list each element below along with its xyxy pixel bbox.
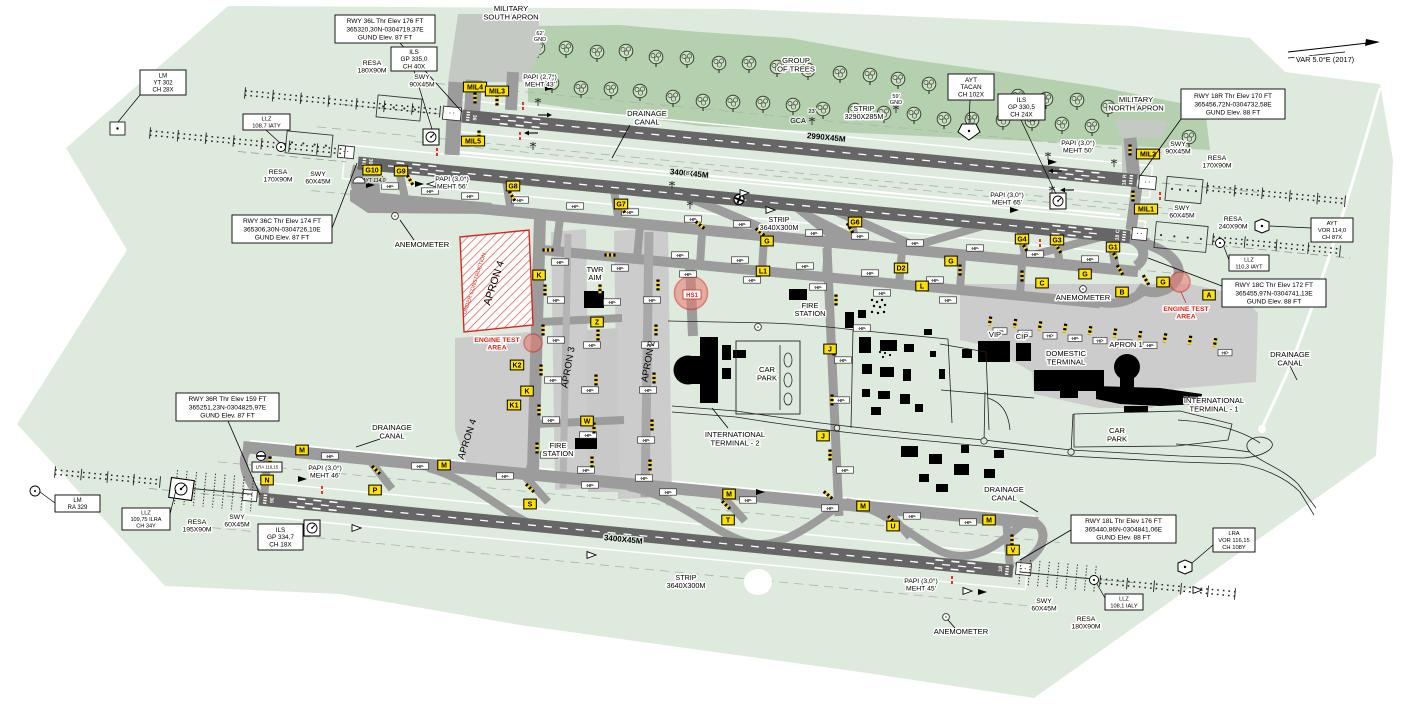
- svg-text:·HP·: ·HP·: [810, 231, 819, 236]
- svg-text:CH 28X: CH 28X: [152, 88, 173, 94]
- svg-text:VOR 116,15: VOR 116,15: [1218, 538, 1249, 544]
- svg-text:GND: GND: [890, 100, 902, 106]
- svg-text:MIL4: MIL4: [467, 85, 483, 92]
- svg-text:CH 102X: CH 102X: [958, 91, 985, 98]
- svg-text:·HP·: ·HP·: [911, 241, 920, 246]
- svg-text:N: N: [264, 478, 269, 485]
- svg-text:·HP·: ·HP·: [1146, 343, 1155, 348]
- svg-text:AIM: AIM: [588, 273, 601, 282]
- svg-text:3640X300M: 3640X300M: [760, 223, 799, 232]
- svg-text:·HP·: ·HP·: [736, 258, 745, 263]
- svg-text:90X45M: 90X45M: [409, 81, 435, 88]
- svg-text:MEHT 56': MEHT 56': [437, 184, 467, 191]
- svg-text:MEHT 50': MEHT 50': [1063, 148, 1093, 155]
- svg-text:108,1 IALY: 108,1 IALY: [1110, 603, 1138, 609]
- svg-text:K2: K2: [513, 363, 522, 370]
- svg-text:J: J: [821, 434, 825, 441]
- svg-text:·HP·: ·HP·: [676, 253, 685, 258]
- svg-text:RESA: RESA: [363, 60, 382, 67]
- svg-text:· ·: · ·: [449, 111, 455, 117]
- svg-text:18: 18: [998, 566, 1004, 572]
- svg-text:CIP: CIP: [1016, 332, 1029, 341]
- svg-text:GUND Elev. 87 FT: GUND Elev. 87 FT: [200, 413, 254, 420]
- svg-text:RESA: RESA: [269, 169, 288, 176]
- svg-text:LM: LM: [159, 74, 167, 80]
- svg-text:PAPI (3,0°): PAPI (3,0°): [1061, 139, 1095, 147]
- svg-text:·HP·: ·HP·: [501, 474, 510, 479]
- svg-text:110,3 IAYT: 110,3 IAYT: [1235, 264, 1263, 270]
- svg-text:G10: G10: [365, 168, 378, 175]
- svg-text:·HP·: ·HP·: [878, 291, 887, 296]
- svg-text:SWY: SWY: [229, 514, 245, 521]
- svg-text:18 C: 18 C: [1115, 229, 1122, 241]
- svg-text:VAR 5.0°E (2017): VAR 5.0°E (2017): [1296, 55, 1354, 64]
- svg-text:GND: GND: [534, 37, 546, 43]
- svg-text:RESA: RESA: [1208, 155, 1227, 162]
- svg-text:LRA 116,15: LRA 116,15: [256, 465, 279, 470]
- svg-text:·HP·: ·HP·: [326, 454, 335, 459]
- svg-text:·HP·: ·HP·: [644, 388, 653, 393]
- svg-text:·HP·: ·HP·: [516, 198, 525, 203]
- svg-text:G: G: [948, 259, 954, 266]
- svg-text:CH 40X: CH 40X: [403, 63, 426, 70]
- svg-text:M: M: [726, 492, 732, 499]
- svg-text:·HP·: ·HP·: [626, 210, 635, 215]
- svg-text:GP 330,5: GP 330,5: [1008, 104, 1035, 111]
- svg-text:3640X300M: 3640X300M: [667, 581, 706, 590]
- svg-text:·HP·: ·HP·: [908, 514, 917, 519]
- svg-text:·HP·: ·HP·: [640, 476, 649, 481]
- svg-text:L1: L1: [759, 269, 767, 276]
- svg-text:RESA: RESA: [1224, 216, 1243, 223]
- svg-text:G9: G9: [396, 169, 405, 176]
- svg-text:ILS: ILS: [409, 49, 419, 56]
- svg-text:SWY: SWY: [1170, 141, 1186, 148]
- svg-text:M: M: [441, 463, 447, 470]
- svg-text:RWY 18L Thr Elev 176 FT: RWY 18L Thr Elev 176 FT: [1085, 518, 1162, 525]
- svg-text:·HP·: ·HP·: [931, 278, 940, 283]
- svg-text:HS1: HS1: [686, 293, 698, 299]
- svg-text:LLZ: LLZ: [262, 117, 272, 123]
- svg-text:TERMINAL - 2: TERMINAL - 2: [710, 438, 759, 447]
- svg-text:ENGINE TEST: ENGINE TEST: [1163, 306, 1209, 313]
- svg-text:SWY: SWY: [1174, 205, 1190, 212]
- svg-text:·HP·: ·HP·: [426, 189, 435, 194]
- svg-text:·HP·: ·HP·: [571, 204, 580, 209]
- svg-text:U: U: [890, 524, 895, 531]
- svg-text:RWY 36L Thr Elev 176 FT: RWY 36L Thr Elev 176 FT: [347, 18, 424, 25]
- svg-text:G7: G7: [616, 202, 625, 209]
- svg-text:170X90M: 170X90M: [263, 176, 292, 183]
- svg-text:W: W: [584, 419, 591, 426]
- svg-text:·HP·: ·HP·: [1086, 257, 1095, 262]
- svg-text:G: G: [764, 239, 770, 246]
- svg-text:·HP·: ·HP·: [748, 278, 757, 283]
- svg-text:G3: G3: [1052, 238, 1061, 245]
- svg-text:MIL5: MIL5: [465, 139, 481, 146]
- svg-text:SWY: SWY: [414, 74, 430, 81]
- svg-text:·HP·: ·HP·: [552, 298, 561, 303]
- svg-text:· ·: · ·: [1137, 232, 1143, 238]
- svg-text:TERMINAL: TERMINAL: [1047, 357, 1085, 366]
- svg-text:·HP·: ·HP·: [1046, 334, 1055, 339]
- svg-text:K1: K1: [510, 403, 519, 410]
- svg-text:·HP·: ·HP·: [738, 222, 747, 227]
- svg-text:YT 302: YT 302: [153, 81, 173, 87]
- svg-text:·HP·: ·HP·: [971, 246, 980, 251]
- svg-text:·HP·: ·HP·: [856, 234, 865, 239]
- svg-text:MIL3: MIL3: [489, 89, 505, 96]
- svg-text:·HP·: ·HP·: [841, 468, 850, 473]
- svg-text:ENGINE TEST: ENGINE TEST: [474, 337, 520, 344]
- svg-text:RESA: RESA: [1077, 616, 1096, 623]
- svg-text:ANEMOMETER: ANEMOMETER: [934, 627, 989, 636]
- svg-text:CH 108Y: CH 108Y: [1222, 545, 1246, 551]
- svg-text:G6: G6: [850, 220, 859, 227]
- svg-text:J: J: [828, 347, 832, 354]
- svg-text:·HP·: ·HP·: [866, 271, 875, 276]
- svg-text:18 R: 18 R: [1122, 174, 1129, 186]
- svg-text:APRON 1: APRON 1: [1109, 340, 1142, 349]
- svg-text:RESA: RESA: [188, 519, 207, 526]
- svg-text:GUND Elev. 87 FT: GUND Elev. 87 FT: [358, 35, 412, 42]
- svg-text:·HP·: ·HP·: [826, 506, 835, 511]
- svg-text:RWY 18R Thr Elev 170 FT: RWY 18R Thr Elev 170 FT: [1194, 93, 1272, 100]
- svg-text:·HP·: ·HP·: [616, 266, 625, 271]
- svg-text:ANEMOMETER: ANEMOMETER: [1056, 293, 1111, 302]
- svg-text:60X45M: 60X45M: [224, 521, 250, 528]
- svg-text:·HP·: ·HP·: [689, 217, 698, 222]
- svg-text:TERMINAL - 1: TERMINAL - 1: [1189, 404, 1238, 413]
- svg-text:PAPI (3,0°): PAPI (3,0°): [435, 175, 469, 183]
- svg-text:8': 8': [686, 171, 690, 177]
- svg-text:·HP·: ·HP·: [642, 438, 651, 443]
- svg-text:CH 87X: CH 87X: [1322, 235, 1342, 241]
- svg-text:MEHT 65': MEHT 65': [992, 200, 1022, 207]
- svg-text:MEHT 43': MEHT 43': [525, 82, 555, 89]
- svg-text:·HP·: ·HP·: [648, 298, 657, 303]
- svg-text:OF TREES: OF TREES: [777, 64, 815, 73]
- svg-text:V: V: [1011, 548, 1016, 555]
- svg-text:·HP·: ·HP·: [588, 343, 597, 348]
- svg-text:RWY 36R Thr Elev 159 FT: RWY 36R Thr Elev 159 FT: [188, 396, 266, 403]
- svg-text:36: 36: [471, 114, 477, 120]
- svg-text:B: B: [1119, 290, 1124, 297]
- svg-text:·HP·: ·HP·: [1096, 338, 1105, 343]
- svg-text:M: M: [299, 448, 305, 455]
- svg-text:LLZ: LLZ: [1244, 258, 1254, 264]
- svg-text:·HP·: ·HP·: [664, 490, 673, 495]
- svg-text:·HP·: ·HP·: [547, 418, 556, 423]
- svg-text:ANEMOMETER: ANEMOMETER: [395, 240, 450, 249]
- svg-text:PAPI (3,0°): PAPI (3,0°): [308, 464, 342, 472]
- svg-text:CANAL: CANAL: [634, 117, 659, 126]
- svg-text:GUND Elev. 88 FT: GUND Elev. 88 FT: [1206, 110, 1260, 117]
- svg-text:240X90M: 240X90M: [1218, 223, 1247, 230]
- svg-text:GCA: GCA: [790, 116, 806, 125]
- svg-text:3290X285M: 3290X285M: [845, 112, 884, 121]
- svg-text:GUND Elev. 87 FT: GUND Elev. 87 FT: [255, 235, 309, 242]
- svg-text:L: L: [920, 284, 925, 291]
- svg-text:VIP: VIP: [989, 330, 1001, 339]
- svg-text:CH 34Y: CH 34Y: [136, 523, 156, 529]
- svg-text:·HP·: ·HP·: [839, 358, 848, 363]
- svg-text:GUND Elev. 88 FT: GUND Elev. 88 FT: [1096, 535, 1150, 542]
- svg-text:MEHT 45': MEHT 45': [906, 586, 936, 593]
- svg-text:365440,86N-0304841,06E: 365440,86N-0304841,06E: [1085, 526, 1163, 533]
- svg-text:180X90M: 180X90M: [1071, 623, 1100, 630]
- svg-text:CH 24X: CH 24X: [1010, 111, 1033, 118]
- svg-text:PAPI (3,0°): PAPI (3,0°): [904, 577, 938, 585]
- svg-text:·HP·: ·HP·: [466, 194, 475, 199]
- svg-text:D2: D2: [897, 266, 906, 273]
- svg-text:K: K: [536, 273, 541, 280]
- svg-text:P: P: [373, 488, 378, 495]
- svg-text:GUND Elev. 88 FT: GUND Elev. 88 FT: [1247, 299, 1301, 306]
- svg-text:SWY: SWY: [1036, 598, 1052, 605]
- svg-text:GP 335,0: GP 335,0: [401, 56, 428, 63]
- svg-text:RWY 18C Thr Elev 172 FT: RWY 18C Thr Elev 172 FT: [1235, 282, 1313, 289]
- svg-text:·HP·: ·HP·: [1031, 252, 1040, 257]
- svg-text:PAPI (2,7°): PAPI (2,7°): [523, 73, 557, 81]
- svg-text:RA 329: RA 329: [68, 505, 88, 511]
- svg-text:AREA: AREA: [1176, 313, 1195, 320]
- svg-text:M: M: [860, 504, 866, 511]
- svg-text:G4: G4: [1017, 237, 1026, 244]
- svg-text:S: S: [528, 502, 533, 509]
- svg-text:MIL1: MIL1: [1138, 207, 1154, 214]
- svg-text:· ·: · ·: [1145, 180, 1151, 186]
- svg-text:· ·: · ·: [1021, 567, 1027, 573]
- svg-text:·HP·: ·HP·: [586, 388, 595, 393]
- svg-text:AYT: AYT: [1327, 221, 1338, 227]
- svg-text:Z: Z: [595, 320, 600, 327]
- svg-text:36: 36: [268, 497, 274, 503]
- svg-text:·HP·: ·HP·: [858, 326, 867, 331]
- svg-text:23': 23': [808, 109, 815, 115]
- svg-text:CANAL: CANAL: [991, 493, 1016, 502]
- svg-text:·HP·: ·HP·: [944, 298, 953, 303]
- svg-text:365320,30N-0304719,37E: 365320,30N-0304719,37E: [346, 26, 424, 33]
- svg-text:G1: G1: [1108, 245, 1117, 252]
- svg-text:LM: LM: [73, 498, 81, 504]
- svg-text:PARK: PARK: [1107, 434, 1127, 443]
- svg-text:AYT: AYT: [965, 77, 977, 84]
- svg-text:60X45M: 60X45M: [1169, 212, 1195, 219]
- svg-text:·HP·: ·HP·: [1071, 336, 1080, 341]
- svg-text:G: G: [1082, 272, 1088, 279]
- svg-text:MEHT 46': MEHT 46': [310, 473, 340, 480]
- svg-text:·HP·: ·HP·: [549, 378, 558, 383]
- svg-text:·HP·: ·HP·: [416, 464, 425, 469]
- svg-text:TACAN: TACAN: [960, 84, 982, 91]
- svg-text:·HP·: ·HP·: [556, 260, 565, 265]
- svg-text:CANAL: CANAL: [379, 431, 404, 440]
- svg-text:365251,23N-0304825,97E: 365251,23N-0304825,97E: [189, 404, 267, 411]
- svg-text:·HP·: ·HP·: [744, 498, 753, 503]
- svg-text:A: A: [1206, 293, 1211, 300]
- svg-text:G: G: [1160, 280, 1166, 287]
- svg-text:·HP·: ·HP·: [684, 272, 693, 277]
- svg-text:VOR 114,0: VOR 114,0: [1318, 228, 1346, 234]
- svg-text:90X45M: 90X45M: [1165, 148, 1191, 155]
- svg-text:365456,72N-0304732,58E: 365456,72N-0304732,58E: [1194, 101, 1272, 108]
- svg-text:AREA: AREA: [487, 344, 506, 351]
- svg-text:STATION: STATION: [795, 309, 826, 318]
- svg-text:SWY: SWY: [310, 171, 326, 178]
- svg-text:·HP·: ·HP·: [552, 338, 561, 343]
- svg-text:K: K: [524, 389, 529, 396]
- svg-text:108,7 IATY: 108,7 IATY: [252, 123, 281, 129]
- svg-text:LLZ: LLZ: [141, 511, 151, 517]
- svg-text:·HP·: ·HP·: [1221, 350, 1230, 355]
- svg-text:·HP·: ·HP·: [582, 468, 591, 473]
- svg-text:STATION: STATION: [543, 449, 574, 458]
- svg-text:GP 334,7: GP 334,7: [267, 534, 294, 541]
- svg-text:180X90M: 180X90M: [357, 67, 386, 74]
- svg-text:·HP·: ·HP·: [586, 483, 595, 488]
- svg-text:365306,30N-0304726,10E: 365306,30N-0304726,10E: [243, 226, 321, 233]
- svg-text:RWY 36C Thr Elev 174 FT: RWY 36C Thr Elev 174 FT: [243, 218, 321, 225]
- svg-text:60X45M: 60X45M: [305, 178, 331, 185]
- svg-text:·HP·: ·HP·: [964, 520, 973, 525]
- svg-text:·HP·: ·HP·: [608, 300, 617, 305]
- svg-text:ILS: ILS: [1017, 97, 1027, 104]
- svg-text:NORTH APRON: NORTH APRON: [1108, 103, 1164, 112]
- svg-text:·HP·: ·HP·: [837, 398, 846, 403]
- svg-text:SOUTH APRON: SOUTH APRON: [483, 12, 538, 21]
- svg-text:· ·: · ·: [343, 150, 349, 156]
- svg-text:60X45M: 60X45M: [1031, 605, 1057, 612]
- svg-text:G8: G8: [508, 184, 517, 191]
- svg-text:·HP·: ·HP·: [584, 433, 593, 438]
- svg-text:M: M: [986, 518, 992, 525]
- svg-text:PAPI (3,0°): PAPI (3,0°): [990, 191, 1024, 199]
- svg-text:T: T: [726, 518, 731, 525]
- svg-text:CH 18X: CH 18X: [269, 541, 292, 548]
- svg-text:170X90M: 170X90M: [1202, 162, 1231, 169]
- svg-text:C: C: [1039, 281, 1044, 288]
- svg-text:PARK: PARK: [757, 373, 777, 382]
- svg-text:ILS: ILS: [276, 527, 286, 534]
- svg-text:195X90M: 195X90M: [182, 526, 211, 533]
- svg-text:365455,97N-0304741,13E: 365455,97N-0304741,13E: [1235, 290, 1313, 297]
- svg-text:·HP·: ·HP·: [801, 264, 810, 269]
- svg-text:·HP·: ·HP·: [386, 184, 395, 189]
- svg-text:109,75 ILRA: 109,75 ILRA: [130, 517, 161, 523]
- svg-text:·HP·: ·HP·: [814, 285, 823, 290]
- svg-text:LLZ: LLZ: [1119, 597, 1129, 603]
- svg-text:LRA: LRA: [1228, 531, 1239, 537]
